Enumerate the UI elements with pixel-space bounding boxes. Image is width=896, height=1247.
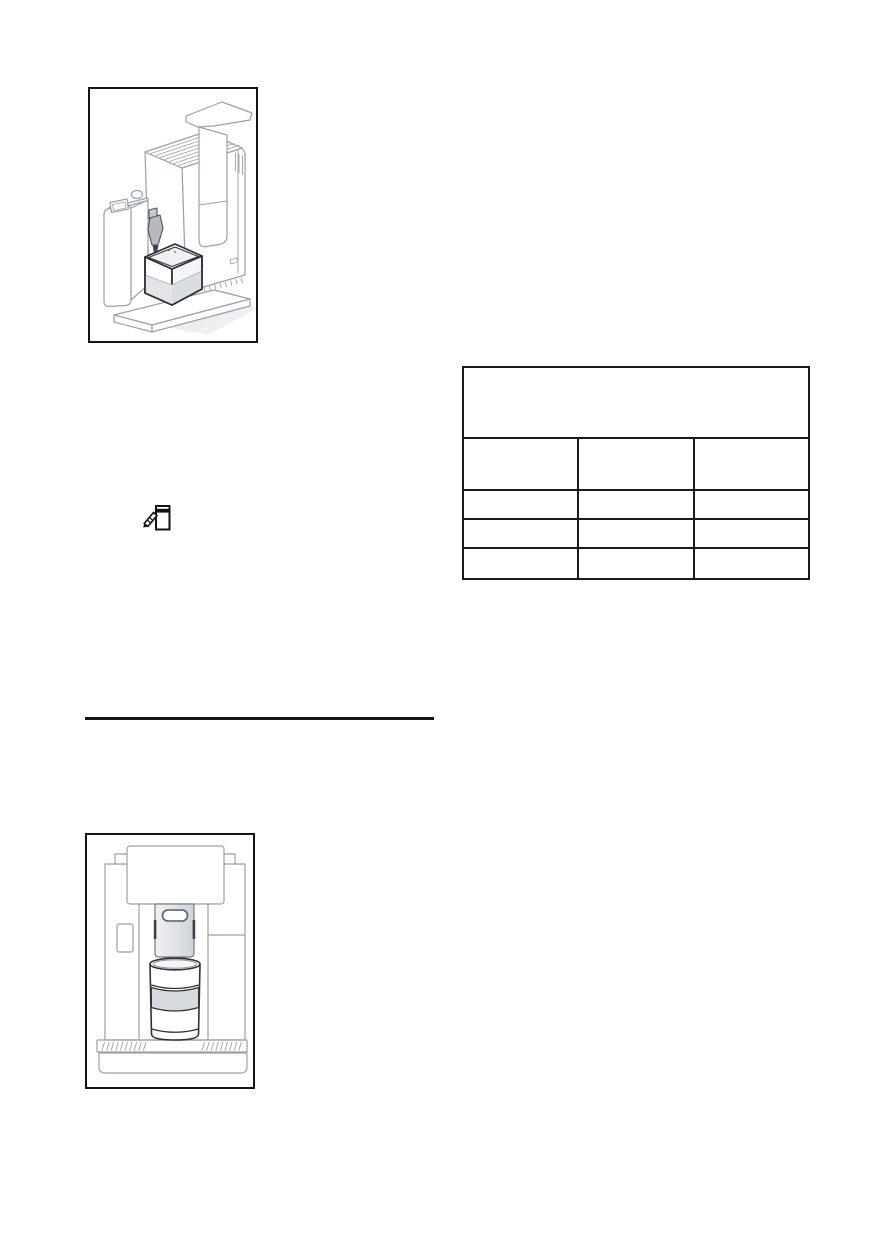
table-row [463, 548, 809, 579]
table-header-cell [694, 438, 809, 490]
coffee-machine-front-illustration [87, 835, 253, 1087]
table-row [463, 490, 809, 519]
table-header-cell [463, 438, 578, 490]
figure-coffee-machine-isometric [88, 87, 258, 343]
note-icon [142, 504, 171, 531]
manual-page [0, 0, 896, 1247]
coffee-machine-isometric-illustration [90, 89, 256, 341]
table-cell [578, 548, 693, 579]
table-row [463, 519, 809, 548]
table-header-row [463, 438, 809, 490]
table-cell [578, 490, 693, 519]
section-divider [85, 717, 434, 720]
table-cell [694, 490, 809, 519]
notepad-with-pen-icon [142, 504, 171, 531]
table-cell [694, 519, 809, 548]
table-cell [463, 548, 578, 579]
table-caption-row [463, 367, 809, 438]
spec-table [462, 366, 810, 580]
table-cell [463, 490, 578, 519]
table-header-cell [578, 438, 693, 490]
figure-coffee-machine-front [85, 833, 255, 1089]
table-cell [463, 519, 578, 548]
table-cell [694, 548, 809, 579]
table-caption-cell [463, 367, 809, 438]
table-cell [578, 519, 693, 548]
